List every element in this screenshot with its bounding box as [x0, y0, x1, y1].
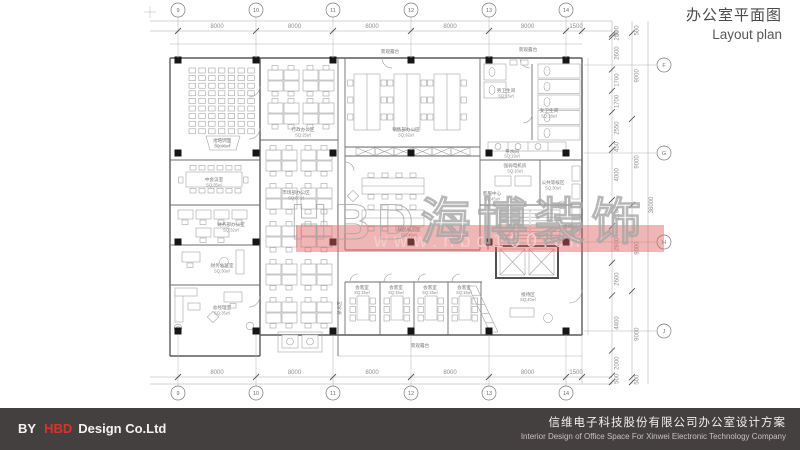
- room-area: SQ:92㎡: [398, 132, 414, 138]
- dimension-total: 36000: [649, 196, 655, 213]
- room-area: SQ:15㎡: [388, 289, 404, 295]
- room-area: SQ:90㎡: [214, 143, 230, 149]
- sheet-title: 办公室平面图 Layout plan: [686, 6, 782, 43]
- room-area: SQ:10㎡: [507, 168, 523, 174]
- drawing-sheet: 办公室平面图 Layout plan: [0, 0, 800, 450]
- grid-bubble-label: 11: [330, 391, 336, 397]
- dimension: 8000: [210, 370, 224, 376]
- terrace-label: 景观露台: [519, 46, 538, 53]
- dimension: 450: [615, 141, 621, 152]
- terrace-label: 景观露台: [411, 342, 430, 349]
- dimension: 8000: [521, 370, 535, 376]
- dimension: 1700: [615, 94, 621, 108]
- dimension: 8000: [288, 370, 302, 376]
- grid-bubble-label: 10: [253, 391, 259, 397]
- grid-bubble-label: 12: [408, 8, 414, 14]
- room-area: SQ:15㎡: [456, 289, 472, 295]
- dimension: 1500: [569, 24, 583, 30]
- dimension: 8000: [288, 24, 302, 30]
- dimension: 9000: [635, 155, 641, 169]
- dimension: 2600: [615, 272, 621, 286]
- dimension: 2550: [615, 121, 621, 135]
- room-area: SQ:25㎡: [295, 132, 311, 138]
- room-area: SQ:19㎡: [504, 153, 520, 159]
- grid-bubble-label: 13: [486, 8, 492, 14]
- terrace-label: 景观露台: [381, 48, 400, 55]
- room-area: SQ:15㎡: [498, 93, 514, 99]
- dimension: 2600: [615, 46, 621, 60]
- room-area: SQ:30㎡: [214, 268, 230, 274]
- room-area: SQ:30㎡: [545, 185, 561, 191]
- grid-bubble-label: 11: [330, 8, 336, 14]
- room-area: SQ:40㎡: [520, 296, 536, 302]
- floor-plan-drawing: 9910101111121213131414800080008000800080…: [0, 0, 800, 408]
- dimension: 500: [635, 25, 641, 36]
- room-area: SQ:15㎡: [422, 289, 438, 295]
- dimension: 1700: [615, 73, 621, 87]
- dimension: 1500: [569, 370, 583, 376]
- watermark: www.hbd100.cn HBD海博装饰: [291, 194, 664, 252]
- dimension: 8000: [365, 370, 379, 376]
- dimension: 200: [615, 30, 621, 41]
- room-area: SQ:35㎡: [206, 182, 222, 188]
- room-area: SQ:32㎡: [223, 227, 239, 233]
- grid-bubble-label: 14: [563, 391, 569, 397]
- grid-bubble-label: 9: [176, 8, 179, 14]
- footer-company: Design Co.Ltd: [78, 421, 166, 436]
- room-area: SQ:35㎡: [214, 310, 230, 316]
- room-area: SQ:15㎡: [354, 289, 370, 295]
- dimension: 500: [635, 374, 641, 385]
- footer-brand: HBD: [44, 421, 72, 436]
- grid-bubble-label: 14: [563, 8, 569, 14]
- watermark-logo: HBD海博装饰: [291, 194, 648, 250]
- sheet-title-zh: 办公室平面图: [686, 6, 782, 26]
- grid-bubble-label: G: [662, 151, 666, 157]
- grid-bubble-label: 13: [486, 391, 492, 397]
- dimension: 500: [615, 373, 621, 384]
- sheet-title-en: Layout plan: [686, 26, 782, 44]
- project-title: 信维电子科技股份有限公司办公室设计方案 Interior Design of O…: [521, 414, 786, 441]
- grid-bubble-label: 10: [253, 8, 259, 14]
- dimension: 2000: [615, 356, 621, 370]
- grid-bubble-label: 9: [176, 391, 179, 397]
- dimension: 8000: [365, 24, 379, 30]
- project-title-zh: 信维电子科技股份有限公司办公室设计方案: [521, 414, 786, 430]
- room-label: 总经理室: [213, 304, 232, 310]
- dimension: 4000: [615, 168, 621, 182]
- room-label: 茶水区: [336, 301, 342, 315]
- project-title-en: Interior Design of Office Space For Xinw…: [521, 432, 786, 441]
- grid-bubble-label: J: [663, 329, 666, 335]
- dimension: 8000: [443, 24, 457, 30]
- footer-bar: BYHBDDesign Co.Ltd 信维电子科技股份有限公司办公室设计方案 I…: [0, 408, 800, 450]
- dimension: 8000: [443, 370, 457, 376]
- dimension: 9000: [635, 327, 641, 341]
- footer-by: BY: [18, 421, 36, 436]
- dimension: 8000: [210, 24, 224, 30]
- dimension: 4400: [615, 316, 621, 330]
- room-area: SQ:18㎡: [541, 113, 557, 119]
- dimension: 9000: [635, 69, 641, 83]
- dimension: 8000: [521, 24, 535, 30]
- grid-bubble-label: 12: [408, 391, 414, 397]
- designer-credit: BYHBDDesign Co.Ltd: [18, 408, 166, 450]
